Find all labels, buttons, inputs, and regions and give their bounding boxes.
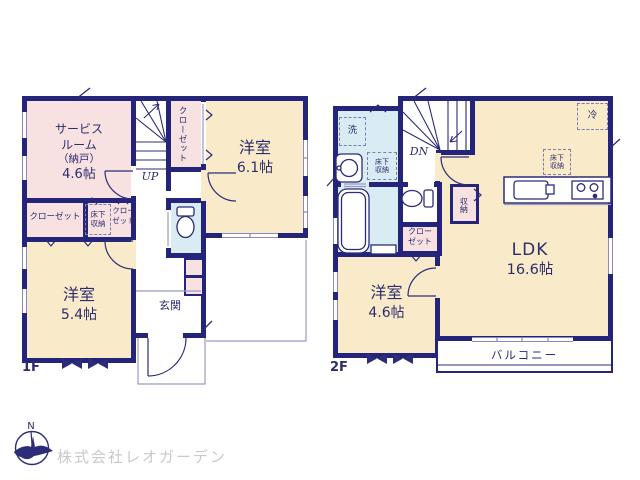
- window-west61-right-2: [303, 196, 308, 228]
- eaves-outline-1f: [206, 240, 306, 341]
- stairs2f-bottom-wall: [436, 150, 475, 155]
- western46-label: 洋室 4.6帖: [335, 283, 438, 322]
- refrigerator-label: 冷: [588, 111, 598, 122]
- underfloor-wash-label: 床下収納: [375, 158, 389, 174]
- underfloor-kitchen-label: 床下収納: [550, 154, 564, 170]
- window-service-left-1: [22, 112, 27, 138]
- floor1-label: 1F: [22, 360, 54, 377]
- window-west54-left-1: [22, 247, 27, 269]
- floor-plan-canvas: 洗 床下収納 床下収納 床下収納 冷: [0, 0, 640, 480]
- window-west61-bottom: [222, 233, 278, 238]
- door-arc-entrance-1f: [148, 338, 186, 376]
- entrance-label: 玄関: [146, 299, 194, 313]
- window-service-left-2: [22, 156, 27, 180]
- storage-label-2f: 収納: [458, 188, 468, 221]
- closet-top-label-1f: クローゼット: [176, 102, 187, 166]
- bathroom-2f: [333, 182, 403, 258]
- closet-left-label-1f: クローゼット: [24, 212, 86, 223]
- toilet-1f: [166, 198, 206, 258]
- porch-outline-1f: [138, 338, 205, 384]
- shoe-cabinet-upper: [184, 258, 204, 277]
- door-gap-western61: [201, 170, 206, 201]
- door-gap-landing-ldk: [435, 153, 441, 181]
- window-ldk-right: [608, 238, 613, 274]
- window-bath-left: [333, 218, 338, 244]
- toilet-2f: [398, 182, 442, 227]
- service-room-label: サービス ルーム （納戸） 4.6帖: [29, 122, 129, 184]
- underfloor-box-wash-2f: 床下収納: [367, 152, 397, 180]
- compass-north-label: N: [24, 420, 38, 433]
- closet-front-gap: [201, 102, 206, 164]
- genkan-bottom-wall-a: [131, 333, 148, 338]
- ldk-label: LDK 16.6帖: [478, 239, 582, 280]
- window-ldk-bottom: [472, 337, 573, 342]
- washer-box-2f: 洗: [339, 117, 366, 146]
- shoe-cabinet-lower: [184, 276, 204, 296]
- washer-label: 洗: [348, 126, 358, 137]
- western54-label: 洋室 5.4帖: [26, 285, 132, 324]
- stairs-up-label: UP: [135, 170, 165, 184]
- balcony-label: バルコニー: [438, 348, 611, 363]
- closet-label-2f: クロー ゼット: [400, 227, 440, 248]
- door-gap-bath: [341, 182, 369, 188]
- door-gap-western54: [131, 240, 136, 269]
- western61-label: 洋室 6.1帖: [214, 138, 296, 177]
- stairs-down-label: DN: [403, 145, 435, 159]
- underfloor-1f-label: 床下収納: [91, 211, 106, 228]
- window-west61-right-1: [303, 140, 308, 176]
- underfloor-box-1f: 床下収納: [85, 204, 111, 235]
- toilet-slide-gap: [166, 210, 171, 248]
- door-gap-toilet2f: [408, 182, 434, 187]
- refrigerator-box-2f: 冷: [577, 103, 608, 130]
- floor2-label: 2F: [330, 360, 362, 377]
- compass-icon: [14, 431, 53, 465]
- closet-mid-label-1f: クロー ゼット: [111, 206, 136, 226]
- underfloor-box-kitchen-2f: 床下収納: [543, 149, 571, 175]
- company-watermark: 株式会社レオガーデン: [57, 446, 227, 467]
- genkan-bottom-wall-b: [183, 333, 206, 338]
